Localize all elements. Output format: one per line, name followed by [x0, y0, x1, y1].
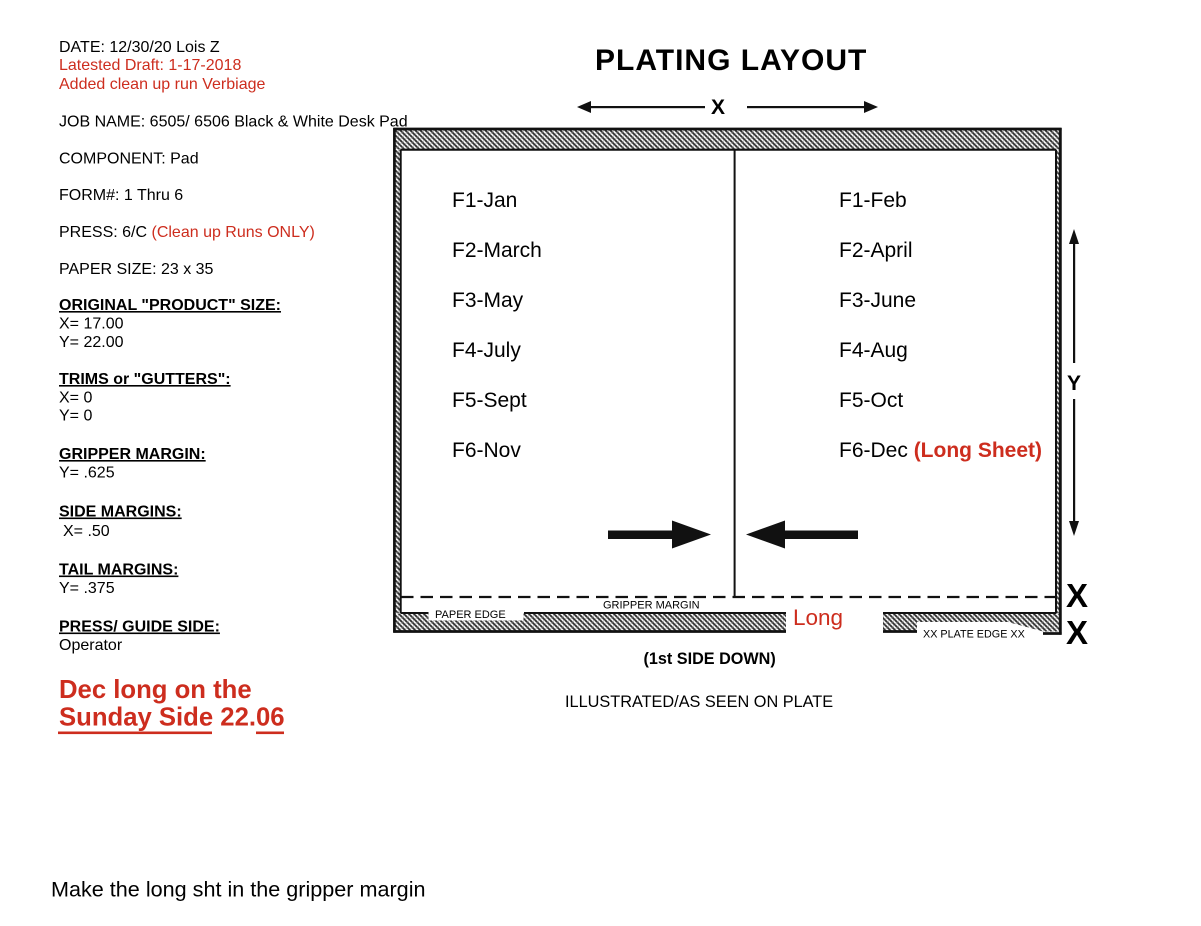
- svg-text:PAPER SIZE: 23 x 35: PAPER SIZE: 23 x 35: [59, 261, 214, 278]
- svg-text:GRIPPER MARGIN:: GRIPPER MARGIN:: [59, 446, 206, 463]
- svg-text:F4-Aug: F4-Aug: [839, 339, 908, 362]
- svg-text:X: X: [1066, 577, 1088, 614]
- svg-text:ORIGINAL "PRODUCT" SIZE:: ORIGINAL "PRODUCT" SIZE:: [59, 297, 281, 314]
- svg-text:X= 0: X= 0: [59, 390, 92, 407]
- svg-text:XX PLATE EDGE XX: XX PLATE EDGE XX: [923, 629, 1025, 641]
- svg-text:F4-July: F4-July: [452, 339, 521, 362]
- svg-text:F2-April: F2-April: [839, 239, 913, 262]
- svg-text:Y= .375: Y= .375: [59, 580, 115, 597]
- svg-text:SIDE MARGINS:: SIDE MARGINS:: [59, 504, 182, 521]
- svg-text:F3-May: F3-May: [452, 289, 524, 312]
- svg-text:Operator: Operator: [59, 637, 123, 654]
- svg-text:COMPONENT: Pad: COMPONENT: Pad: [59, 151, 199, 168]
- svg-text:X= .50: X= .50: [63, 523, 110, 540]
- svg-text:F6-Nov: F6-Nov: [452, 439, 521, 462]
- svg-text:X: X: [1066, 614, 1088, 651]
- svg-text:Long: Long: [793, 605, 843, 630]
- svg-text:X= 17.00: X= 17.00: [59, 316, 124, 333]
- svg-text:(1st SIDE DOWN): (1st SIDE DOWN): [644, 650, 776, 668]
- svg-text:Make the long sht in the gripp: Make the long sht in the gripper margin: [51, 877, 426, 902]
- svg-text:PLATING LAYOUT: PLATING LAYOUT: [595, 44, 867, 77]
- svg-text:F5-Oct: F5-Oct: [839, 389, 903, 412]
- svg-text:JOB NAME: 6505/ 6506 Black & W: JOB NAME: 6505/ 6506 Black & White Desk …: [59, 114, 408, 131]
- svg-text:F2-March: F2-March: [452, 239, 542, 262]
- svg-text:F5-Sept: F5-Sept: [452, 389, 527, 412]
- svg-text:Latested Draft: 1-17-2018: Latested Draft: 1-17-2018: [59, 57, 241, 74]
- svg-text:FORM#: 1 Thru 6: FORM#: 1 Thru 6: [59, 187, 183, 204]
- svg-text:Y= 22.00: Y= 22.00: [59, 334, 124, 351]
- svg-text:ILLUSTRATED/AS SEEN ON PLATE: ILLUSTRATED/AS SEEN ON PLATE: [565, 693, 833, 711]
- svg-text:PRESS/ GUIDE SIDE:: PRESS/ GUIDE SIDE:: [59, 619, 220, 636]
- svg-text:X: X: [711, 96, 725, 119]
- svg-text:GRIPPER MARGIN: GRIPPER MARGIN: [603, 600, 700, 612]
- svg-text:PRESS: 6/C (Clean up Runs ONLY: PRESS: 6/C (Clean up Runs ONLY): [59, 224, 315, 241]
- svg-text:Sunday Side 22.06: Sunday Side 22.06: [59, 704, 285, 732]
- svg-text:TRIMS or "GUTTERS":: TRIMS or "GUTTERS":: [59, 371, 231, 388]
- svg-text:F1-Feb: F1-Feb: [839, 189, 907, 212]
- svg-text:F6-Dec (Long Sheet): F6-Dec (Long Sheet): [839, 439, 1042, 462]
- svg-text:F3-June: F3-June: [839, 289, 916, 312]
- svg-text:F1-Jan: F1-Jan: [452, 189, 517, 212]
- svg-text:Y= .625: Y= .625: [59, 465, 115, 482]
- svg-text:Added clean up run Verbiage: Added clean up run Verbiage: [59, 76, 265, 93]
- svg-text:Y: Y: [1067, 372, 1081, 395]
- svg-text:PAPER EDGE: PAPER EDGE: [435, 609, 506, 621]
- svg-text:Dec long on the: Dec long on the: [59, 676, 252, 704]
- svg-text:Y= 0: Y= 0: [59, 408, 92, 425]
- svg-text:TAIL MARGINS:: TAIL MARGINS:: [59, 562, 178, 579]
- svg-text:DATE: 12/30/20 Lois Z: DATE: 12/30/20 Lois Z: [59, 39, 220, 56]
